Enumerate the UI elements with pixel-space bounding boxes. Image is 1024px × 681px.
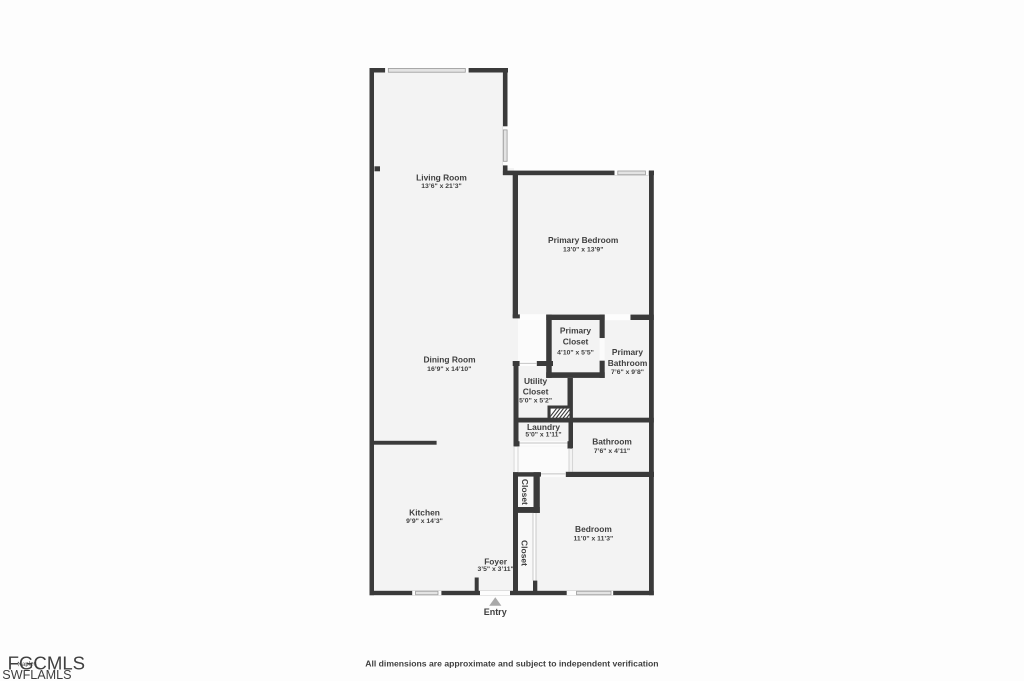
svg-text:Bedroom: Bedroom [575,524,612,534]
svg-text:5’0" x 1’11": 5’0" x 1’11" [525,432,561,439]
svg-text:Dining Room: Dining Room [423,355,475,365]
svg-text:Living Room: Living Room [416,172,467,182]
svg-text:13’0" x 13’9": 13’0" x 13’9" [563,247,603,254]
svg-text:4’10" x 5’5": 4’10" x 5’5" [557,349,594,356]
svg-text:Primary: Primary [560,325,592,335]
svg-text:13’6" x 21’3": 13’6" x 21’3" [421,183,461,190]
svg-text:Utility: Utility [524,376,548,386]
svg-text:Closet: Closet [520,479,530,505]
svg-text:Naples: Naples [17,660,37,668]
svg-text:Closet: Closet [563,337,589,347]
svg-text:Primary Bedroom: Primary Bedroom [548,235,618,245]
svg-text:Kitchen: Kitchen [409,508,440,518]
svg-text:7’6" x 4’11": 7’6" x 4’11" [594,448,630,455]
svg-text:9’9" x 14’3": 9’9" x 14’3" [406,518,443,525]
svg-text:5’0" x 5’2": 5’0" x 5’2" [519,398,552,405]
svg-text:Closet: Closet [520,540,530,566]
svg-text:Foyer: Foyer [484,556,508,566]
svg-text:7’6" x 9’8": 7’6" x 9’8" [611,369,644,376]
svg-text:Primary: Primary [612,347,644,357]
svg-text:11’0" x 11’3": 11’0" x 11’3" [574,536,614,543]
svg-text:Bathroom: Bathroom [608,358,648,368]
svg-text:16’9" x 14’10": 16’9" x 14’10" [427,366,471,373]
svg-text:Entry: Entry [484,607,507,617]
svg-text:All dimensions are approximate: All dimensions are approximate and subje… [365,659,658,669]
svg-text:Bathroom: Bathroom [592,437,632,447]
svg-text:Laundry: Laundry [527,422,560,432]
svg-text:3’5" x 3’11": 3’5" x 3’11" [477,566,513,573]
svg-text:SWFLAMLS: SWFLAMLS [2,668,71,681]
svg-text:Closet: Closet [523,386,549,396]
